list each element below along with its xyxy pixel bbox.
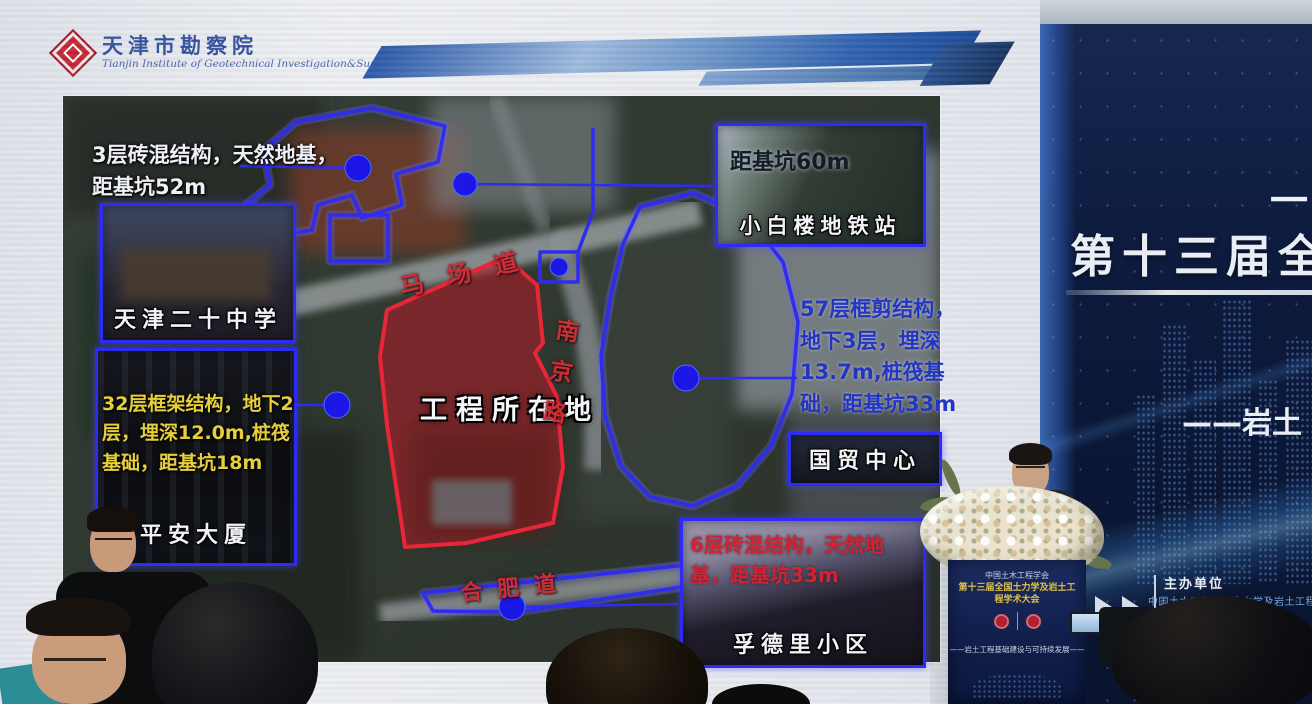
- institute-name-cn: 天津市勘察院: [102, 30, 258, 60]
- estate-photo-label: 孚德里小区: [683, 627, 923, 659]
- backdrop-title-underline: [1066, 290, 1312, 295]
- institute-name-en: Tianjin Institute of Geotechnical Invest…: [102, 58, 410, 70]
- trade-label-box: 国贸中心: [788, 432, 942, 486]
- ribbon-main: [362, 30, 981, 78]
- society-logo-icon: [994, 614, 1009, 629]
- school-photo-box: 天津二十中学: [100, 203, 296, 343]
- camera-screen: [1070, 612, 1101, 634]
- trade-label: 国贸中心: [791, 443, 939, 475]
- metro-annotation: 距基坑60m: [730, 146, 850, 179]
- dotted-skyline-graphic: [1136, 274, 1312, 584]
- ceiling-strip: [1040, 0, 1312, 26]
- project-site-label: 工程所在地: [420, 388, 600, 427]
- estate-annotation: 6层砖混结构，天然地基，距基坑33m: [690, 530, 920, 590]
- backdrop-dash-partial: 一: [1270, 170, 1308, 225]
- school-annotation: 3层砖混结构，天然地基，距基坑52m: [92, 140, 344, 203]
- audience-man-glasses: [95, 538, 132, 547]
- marker-dot-trade: [673, 365, 699, 391]
- marker-dot-school: [345, 155, 371, 181]
- backdrop-subtitle: ——岩土: [1182, 398, 1302, 442]
- presenter-glasses: [1016, 466, 1045, 474]
- marker-dot-metro: [550, 258, 568, 276]
- podium-line1: 中国土木工程学会: [948, 570, 1086, 581]
- institute-logo-block: 天津市勘察院 Tianjin Institute of Geotechnical…: [56, 30, 386, 86]
- organizer-heading: 主办单位: [1164, 573, 1224, 592]
- trade-annotation: 57层框剪结构，地下3层，埋深13.7m,桩筏基础，距基坑33m: [800, 294, 958, 420]
- school-photo-label: 天津二十中学: [103, 302, 293, 334]
- tower-annotation: 32层框架结构，地下2层，埋深12.0m,桩筏基础，距基坑18m: [102, 390, 294, 478]
- school-building-hint: [121, 248, 271, 300]
- podium: 中国土木工程学会 第十三届全国土力学及岩土工程学术大会 ——岩土工程基础建设与可…: [948, 560, 1086, 704]
- audience-teal-glasses: [44, 658, 106, 669]
- podium-line3: ——岩土工程基础建设与可持续发展——: [948, 644, 1086, 655]
- podium-line2: 第十三届全国土力学及岩土工程学术大会: [956, 582, 1078, 606]
- podium-globe-graphic: [972, 674, 1062, 700]
- marker-dot-tower: [324, 392, 350, 418]
- marker-dot-campus-east: [453, 172, 477, 196]
- presenter-hair: [1009, 443, 1052, 465]
- audience-man-hair: [87, 506, 139, 532]
- conference-logo-icon: [1026, 614, 1041, 629]
- podium-logos: [948, 612, 1086, 630]
- light-streak-upper: [1040, 304, 1312, 495]
- audience-teal-hair: [26, 598, 130, 636]
- metro-photo-label: 小白楼地铁站: [718, 210, 923, 240]
- metro-photo-box: 小白楼地铁站: [715, 123, 926, 247]
- backdrop-title: 第十三届全: [1070, 220, 1312, 285]
- ribbon-tail: [920, 42, 1015, 87]
- logo-separator: [1017, 612, 1018, 630]
- ribbon-light: [698, 65, 956, 86]
- header-ribbon: [371, 22, 1012, 99]
- institute-logo-icon: [49, 29, 97, 77]
- conference-photo: 天津市勘察院 Tianjin Institute of Geotechnical…: [0, 0, 1312, 704]
